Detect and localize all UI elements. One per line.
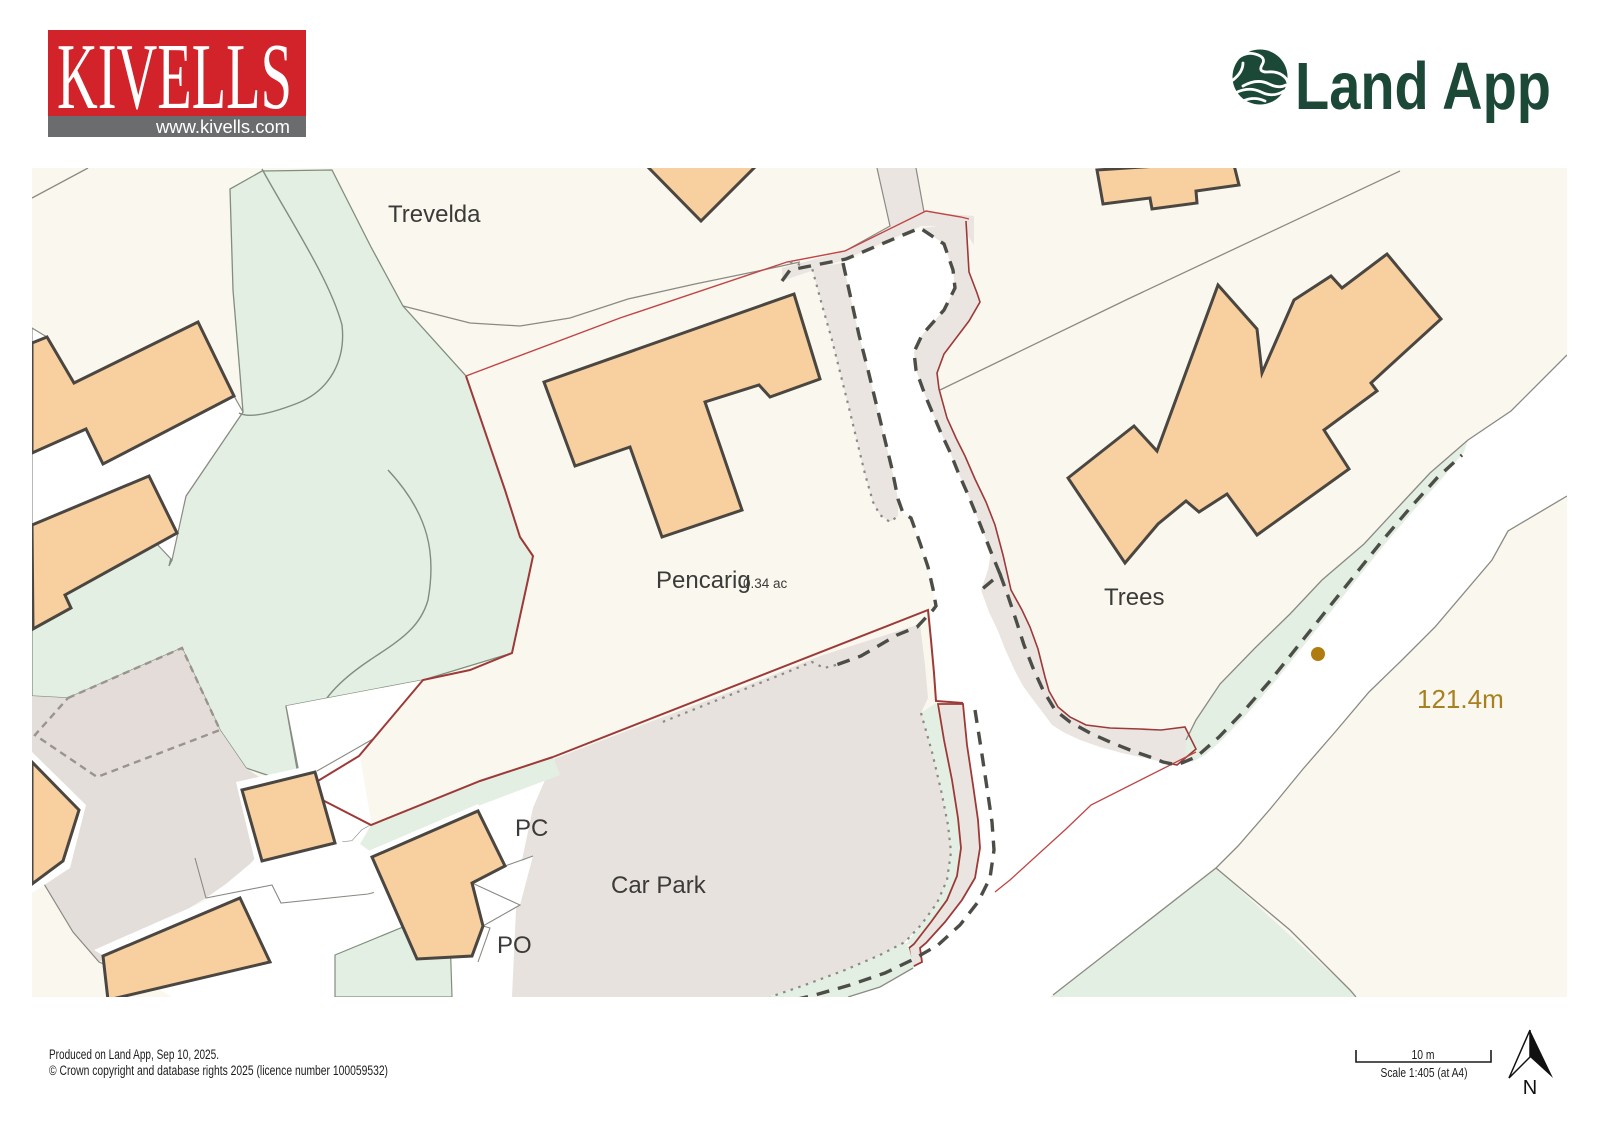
svg-text:Car Park: Car Park — [611, 872, 707, 899]
svg-text:KIVELLS: KIVELLS — [57, 25, 292, 129]
svg-text:Pencarig: Pencarig — [656, 567, 751, 594]
svg-text:Scale 1:405 (at A4): Scale 1:405 (at A4) — [1381, 1065, 1468, 1080]
svg-text:N: N — [1523, 1077, 1537, 1099]
svg-text:PC: PC — [515, 815, 548, 842]
svg-text:0.34 ac: 0.34 ac — [743, 576, 788, 591]
svg-text:Trevelda: Trevelda — [388, 201, 481, 228]
svg-text:Land App: Land App — [1295, 49, 1551, 124]
svg-text:www.kivells.com: www.kivells.com — [155, 117, 290, 137]
svg-text:10 m: 10 m — [1412, 1047, 1435, 1062]
svg-text:Trees: Trees — [1104, 584, 1164, 611]
svg-text:Produced on Land App, Sep 10,: Produced on Land App, Sep 10, 2025. — [49, 1047, 219, 1062]
svg-text:PO: PO — [497, 932, 532, 959]
svg-text:121.4m: 121.4m — [1417, 684, 1504, 714]
svg-text:© Crown copyright and database: © Crown copyright and database rights 20… — [49, 1063, 388, 1078]
